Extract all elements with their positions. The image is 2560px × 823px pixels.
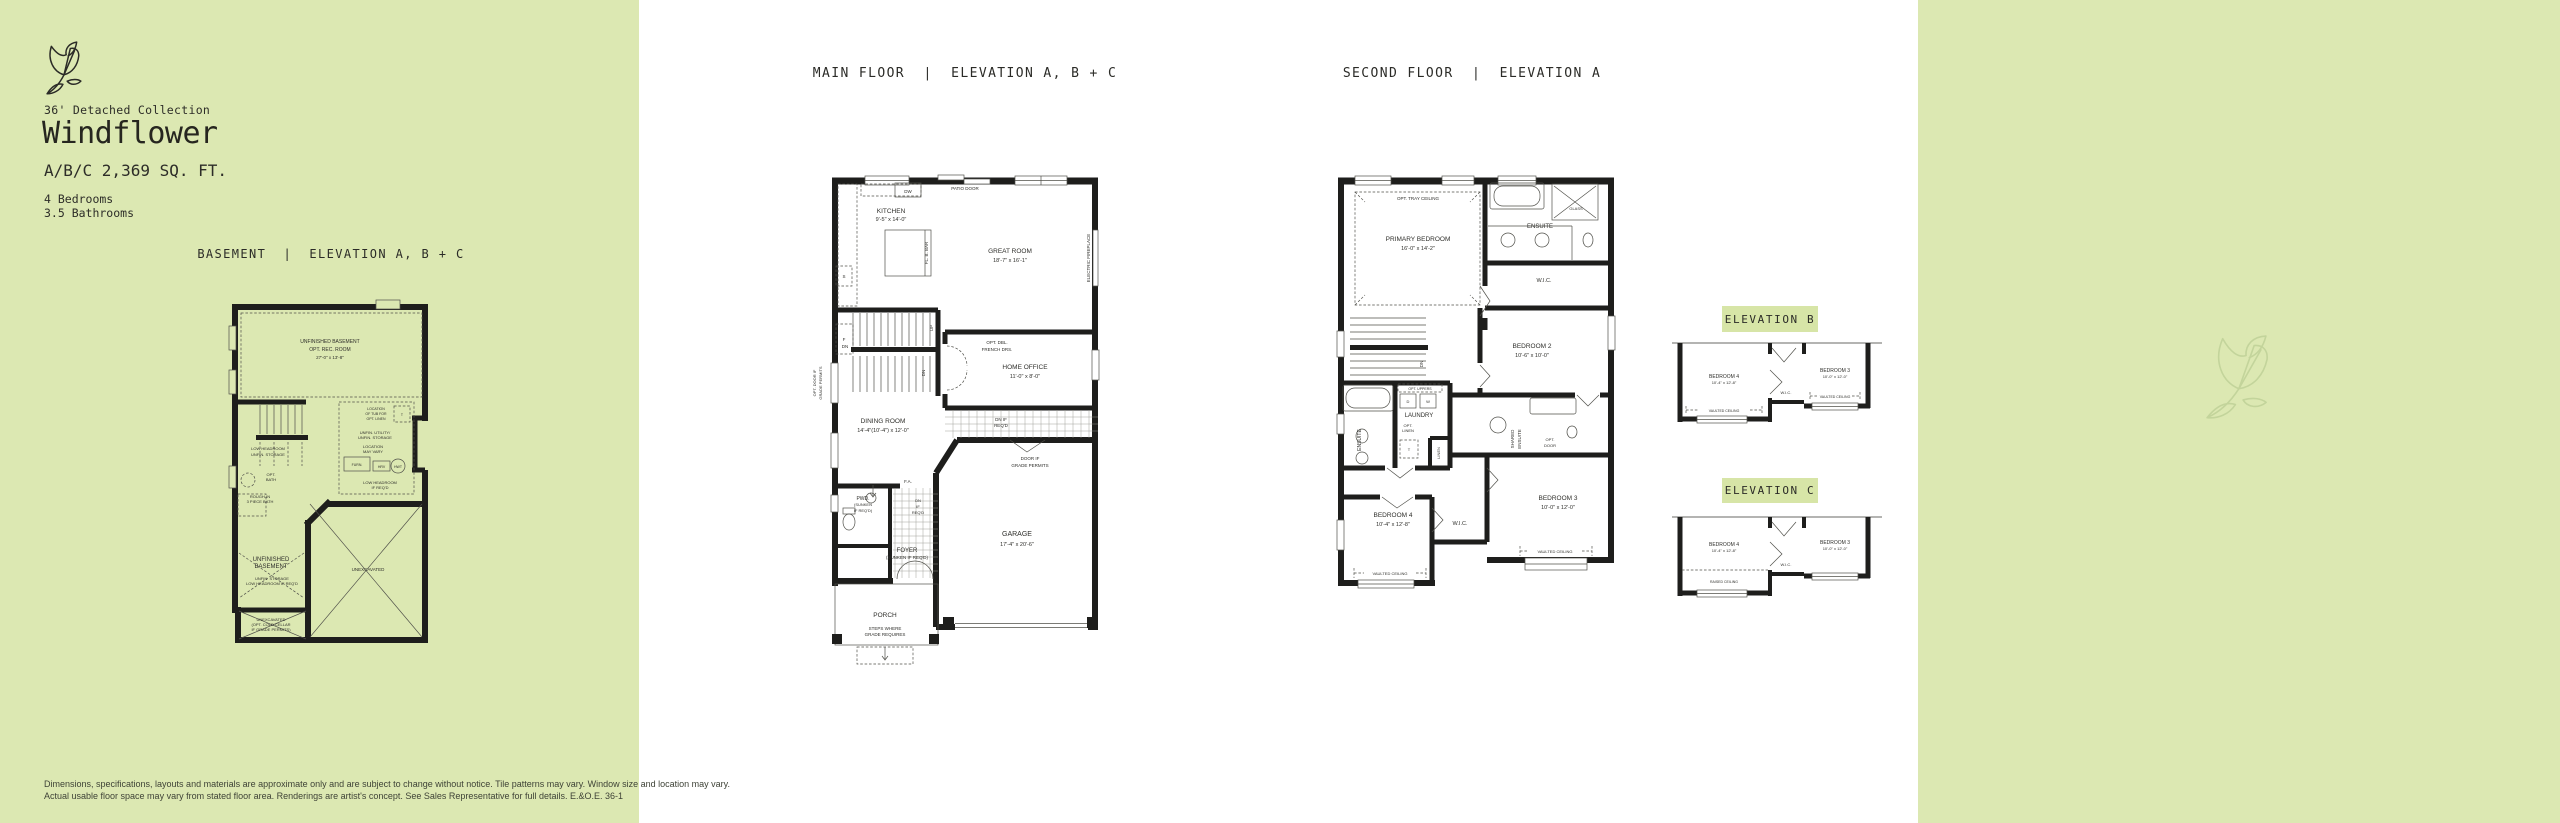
rec-room-label-2: OPT. REC. ROOM [309,347,350,353]
bedroom3-dims: 10'-0" x 12'-0" [1541,505,1575,511]
wic4-label: W.I.C. [1453,521,1468,527]
primary-bedroom-label: PRIMARY BEDROOM [1386,236,1451,243]
foyer-label-2: (SUNKEN IF REQ'D) [886,555,929,560]
elev-b-vaulted3-label: VAULTED CEILING [1820,395,1851,399]
basement-labels: UNFINISHED BASEMENT OPT. REC. ROOM 27'-0… [246,339,404,632]
elevation-c-plan: BEDROOM 4 10'-4" x 12'-8" W.I.C. BEDROOM… [1672,514,1882,610]
tub-marker: T [1408,447,1411,452]
main-floor-heading: MAIN FLOOR | ELEVATION A, B + C [813,66,1117,81]
kitchen-dims: 9'-5" x 14'-0" [876,217,907,223]
flower-watermark [2190,330,2290,428]
basement-floor-plan: UNFINISHED BASEMENT OPT. REC. ROOM 27'-0… [226,298,436,652]
shared-ensuite-label-2: ENSUITE [1517,429,1522,449]
tub-location-label-3: OPT. LINEN [366,417,386,421]
stairs-up-label: UP [929,325,934,331]
rec-room-dims: 27'-0" x 13'-8" [316,355,344,360]
powder-label-3: IF REQ'D) [854,508,873,513]
great-room-dims: 18'-7" x 16'-1" [993,258,1027,264]
dryer-label: D [1407,399,1410,404]
unexcavated-label: UNEXCAVATED [352,567,386,572]
unfinished-basement-label: UNFINISHED [253,557,290,563]
elev-c-chevrons [1770,522,1796,566]
opt-tray-label: OPT. TRAY CEILING [1397,196,1440,201]
linen-label: LINEN [1436,447,1441,459]
ensuite4-label: ENSUITE [1357,429,1363,451]
home-facts: 4 Bedrooms 3.5 Bathrooms [44,192,134,220]
shared-ensuite-label: SHARED [1510,429,1515,449]
low-headroom-reqd-label-2: IF REQ'D [372,485,389,490]
main-walls [832,181,1098,627]
garage-label: GARAGE [1002,531,1032,538]
door-grade-label: DOOR IF [1021,456,1040,461]
bedroom4-dims: 10'-4" x 12'-8" [1376,522,1410,528]
foyer-dn-label-3: REQ'D [912,510,924,515]
bathrooms-count: 3.5 Bathrooms [44,206,134,220]
flush-bar-label: FL. B. BAR [924,241,929,264]
hrv-label: HRV [378,465,386,469]
bedrooms-count: 4 Bedrooms [44,192,134,206]
unfinished-basement-label-2: BASEMENT [254,564,287,570]
bedroom3-label: BEDROOM 3 [1538,495,1577,502]
fridge-label: F [843,337,846,342]
page-title: Windflower [42,116,218,151]
disclaimer-line-1: Dimensions, specifications, layouts and … [44,778,730,790]
opt-door-label: OPT. [1546,437,1555,442]
elev-b-vaulted4-label: VAULTED CEILING [1709,409,1740,413]
elev-b-bedroom4-dims: 10'-4" x 12'-8" [1712,380,1737,385]
bed4-ensuite-fixtures [1343,385,1393,464]
steps-label: STEPS WHERE [869,626,902,631]
square-footage: A/B/C 2,369 SQ. FT. [44,161,227,180]
dishwasher-label: DW [904,189,912,194]
door-grade-label-2: GRADE PERMITS [1011,463,1048,468]
furnace-label: FURN. [352,463,363,467]
french-doors-label-2: FRENCH DRS. [982,347,1013,352]
elevation-b-plan: BEDROOM 4 10'-4" x 12'-8" W.I.C. BEDROOM… [1672,340,1882,436]
home-office-dims: 11'-0" x 8'-0" [1010,374,1040,380]
opt-door-grade-label: OPT. DOOR IF [812,369,817,396]
cold-cellar-label-3: IF GRADE PERMITS) [251,627,291,632]
foyer-label: FOYER [897,548,918,554]
elevation-c-badge: ELEVATION C [1722,478,1818,503]
dining-room-dims: 14'-4"(10'-4") x 12'-0" [857,428,909,434]
porch-label: PORCH [873,612,897,619]
main-floor-plan: PATIO DOOR DW KITCHEN 9'-5" x 14'-0" S F… [805,168,1110,673]
powder-label-2: (SUNKEN [854,502,872,507]
second-floor-plan: OPT. TRAY CEILING PRIMARY BEDROOM 16'-0"… [1330,168,1622,596]
wic-label: W.I.C. [1537,278,1552,284]
fa-label: F.A. [904,479,912,484]
floorplan-brochure-page: { "colors":{"panel_green":"#dce8b2","bad… [0,0,2560,823]
basement-windows [229,300,400,488]
french-door-arcs [947,346,967,390]
location-vary-label-2: MAY VARY [363,449,383,454]
ensuite-label: ENSUITE [1527,224,1553,230]
glass-label: GLASS [1569,206,1583,211]
foyer-dn-label: DN [915,498,921,503]
dining-room-label: DINING ROOM [861,418,906,425]
opt-linen-label-2: LINEN [1402,428,1414,433]
elev-b-wic-label: W.I.C. [1781,390,1792,395]
dn-if-reqd-label-2: REQ'D [994,423,1009,428]
sink-label: S [842,274,845,279]
second-stairs [1350,318,1428,375]
stairs-dn-label: DN [842,344,849,349]
bedroom2-dims: 10'-6" x 10'-0" [1515,353,1549,359]
stairs-dn-label: DN [1419,361,1424,368]
second-labels: OPT. TRAY CEILING PRIMARY BEDROOM 16'-0"… [1357,196,1583,576]
elev-b-chevrons [1770,348,1796,394]
tub-marker: T [401,413,404,417]
laundry-label: LAUNDRY [1405,413,1434,419]
opt-bath-label-2: BATH [266,477,276,482]
elev-c-walls [1680,517,1870,596]
vaulted3-label: VAULTED CEILING [1538,549,1573,554]
elev-c-wic-label: W.I.C. [1781,562,1792,567]
elev-c-raised-label: RAISED CEILING [1710,580,1738,584]
elev-c-bedroom4-dims: 10'-4" x 12'-8" [1712,548,1737,553]
bedroom4-label: BEDROOM 4 [1373,512,1412,519]
utility-label-2: UNFIN. STORAGE [358,435,392,440]
disclaimer-line-2: Actual usable floor space may vary from … [44,790,730,802]
great-room-label: GREAT ROOM [988,248,1032,255]
fireplace-label: ELECTRIC FIREPLACE [1086,234,1091,283]
main-windows [831,175,1099,512]
shared-ensuite-fixtures [1490,398,1577,438]
tub-location-label: LOCATION [367,407,385,411]
opt-door-grade-label-2: GRADE PERMITS [818,366,823,399]
ensuite-fixtures [1488,183,1598,260]
opt-uppers-label: OPT. UPPERS [1408,387,1432,391]
hwt-label: HWT [394,465,403,469]
kitchen-label: KITCHEN [877,208,906,215]
tub-location-label-2: OF TUB FOR [365,412,387,416]
basement-heading: BASEMENT | ELEVATION A, B + C [197,247,464,261]
garage-door [943,617,1098,631]
bedroom2-label: BEDROOM 2 [1512,343,1551,350]
disclaimer: Dimensions, specifications, layouts and … [44,778,730,802]
flower-logo [42,40,86,98]
french-doors-label: OPT. DBL. [986,340,1007,345]
foyer-dn-label-2: IF [916,504,920,509]
low-headroom-label: LOW HEADROOM [251,446,285,451]
rough-in-label-2: 3 PIECE BATH [247,499,274,504]
home-office-label: HOME OFFICE [1002,364,1048,371]
elevation-b-badge: ELEVATION B [1722,306,1818,332]
garage-dims: 17'-4" x 20'-6" [1000,542,1034,548]
dn-if-reqd-label: DN IF [995,417,1007,422]
elev-b-bedroom3-dims: 10'-0" x 12'-0" [1823,374,1848,379]
steps-label-2: GRADE REQUIRES [865,632,906,637]
elev-c-windows [1697,573,1858,597]
patio-door-label: PATIO DOOR [951,186,979,191]
vaulted4-label: VAULTED CEILING [1373,571,1408,576]
main-stairs [851,313,938,392]
low-headroom-label-2: UNFIN. STORAGE [251,452,285,457]
opt-door-label-2: DOOR [1544,443,1556,448]
unfin-storage-label-2: LOW HEADROOM IF REQ'D [246,581,298,586]
collection-name: 36' Detached Collection [44,103,210,117]
elev-b-windows [1697,403,1858,423]
mudroom-steps-hatch [945,410,1098,452]
primary-bedroom-dims: 16'-0" x 14'-2" [1401,246,1435,252]
second-floor-heading: SECOND FLOOR | ELEVATION A [1343,66,1601,81]
elev-c-bedroom3-dims: 10'-0" x 12'-0" [1823,546,1848,551]
washer-label: W [1426,399,1430,404]
front-door-arcs [897,561,933,579]
rec-room-label: UNFINISHED BASEMENT [300,339,359,345]
laundry-fixtures [1398,384,1442,458]
stairs-dn2-label: DN [921,370,926,377]
